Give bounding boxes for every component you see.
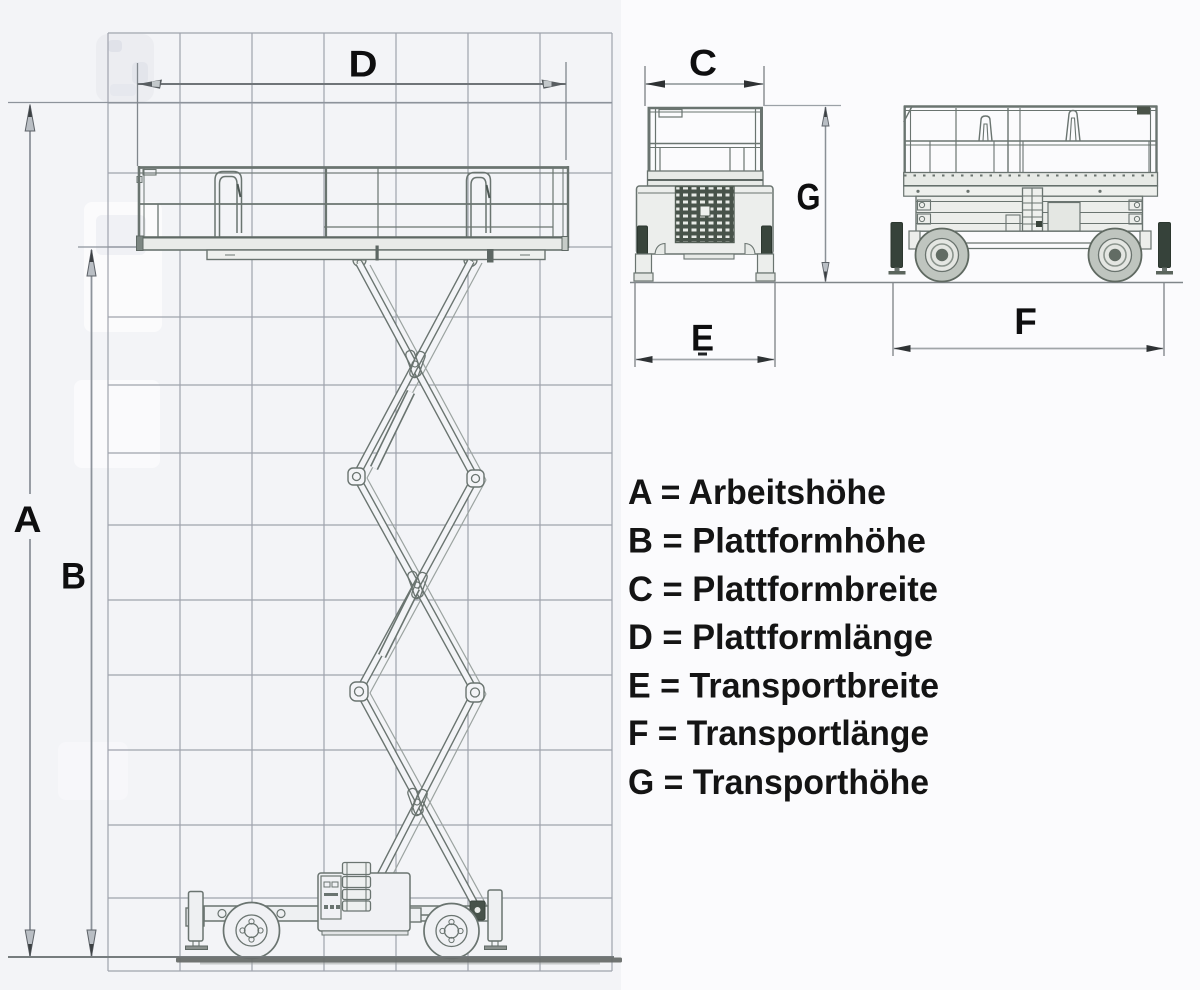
svg-text:E: E [691,318,714,359]
svg-text:A: A [14,499,42,540]
svg-text:F: F [1014,301,1037,342]
svg-text:G = Transporthöhe: G = Transporthöhe [628,762,929,802]
svg-text:B: B [61,556,86,597]
svg-text:C: C [689,43,717,84]
svg-text:C = Plattformbreite: C = Plattformbreite [628,569,938,609]
svg-text:D: D [349,44,378,85]
svg-text:E = Transportbreite: E = Transportbreite [628,666,939,706]
svg-text:D = Plattformlänge: D = Plattformlänge [628,617,933,657]
svg-text:F = Transportlänge: F = Transportlänge [628,713,929,753]
svg-text:B = Plattformhöhe: B = Plattformhöhe [628,521,926,561]
svg-text:A = Arbeitshöhe: A = Arbeitshöhe [628,472,886,512]
svg-text:G: G [797,177,821,218]
